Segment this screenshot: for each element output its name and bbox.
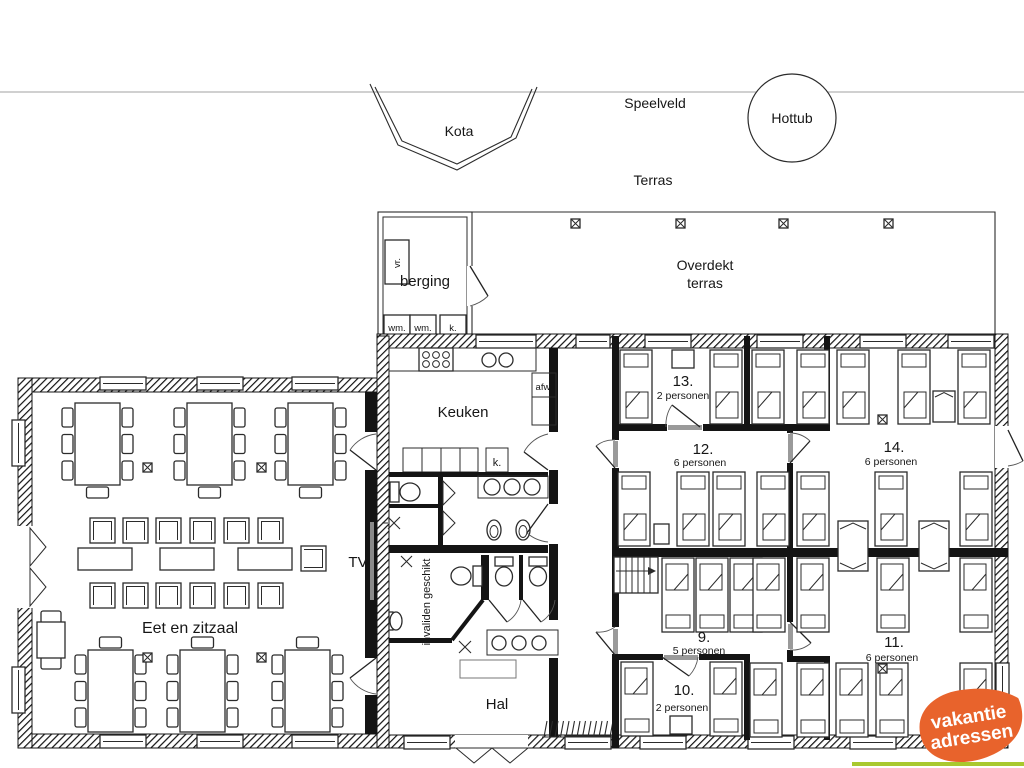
accessible-label: invaliden geschikt [421, 559, 433, 646]
room-9-capacity: 5 personen [673, 645, 726, 657]
berging-k-label: k. [449, 323, 456, 334]
overdekt-terras: Overdekt terras [472, 212, 995, 334]
armchair [123, 518, 148, 543]
column-icon [884, 219, 893, 228]
armchair [90, 518, 115, 543]
keuken: afw. Keuken k. [389, 348, 556, 472]
staircase [614, 557, 658, 593]
terras-label: Terras [634, 172, 673, 188]
bed-icon [618, 472, 650, 546]
hal-label: Hal [486, 696, 509, 713]
bed-icon [797, 558, 829, 632]
door-leaf [30, 528, 46, 566]
room-12-capacity: 6 personen [674, 457, 727, 469]
hal: invaliden geschikt Hal [389, 555, 614, 763]
nightstand [672, 350, 694, 368]
bed-icon [877, 558, 909, 632]
bed-icon [960, 472, 992, 546]
window-icon [197, 735, 243, 748]
vr-label: vr. [392, 258, 403, 268]
tv-label: TV [348, 554, 367, 571]
column-icon [779, 219, 788, 228]
stove-icon [419, 348, 453, 371]
nightstand [654, 524, 669, 544]
overdekt-terras-label-2: terras [687, 275, 723, 291]
bed-icon [621, 662, 653, 736]
wm-label-1: wm. [387, 323, 405, 334]
window-icon [100, 735, 146, 748]
washbasin-icon [504, 479, 520, 495]
window-icon [12, 420, 25, 466]
window-icon [748, 736, 794, 749]
side-table [37, 611, 65, 669]
armchair [90, 583, 115, 608]
armchair [258, 583, 283, 608]
window-icon [292, 735, 338, 748]
bed-icon [753, 558, 785, 632]
window-icon [565, 736, 611, 749]
floorplan-canvas: Kota Speelveld Hottub Terras Overdekt te… [0, 0, 1024, 768]
door-leaf [443, 481, 455, 505]
bed-icon [750, 663, 782, 737]
shower-icon [401, 556, 412, 567]
room-9-number: 9. [698, 629, 711, 646]
bed-icon [836, 663, 868, 737]
bed-icon [752, 350, 784, 424]
column-icon [571, 219, 580, 228]
window-icon [476, 335, 536, 348]
kitchen-label: Keuken [438, 404, 489, 421]
afw-label: afw. [536, 382, 553, 393]
room-11-number: 11. [884, 634, 904, 651]
column-icon [676, 219, 685, 228]
bed-icon [710, 662, 742, 736]
washbasin-icon [492, 636, 506, 650]
bed-icon [662, 558, 694, 632]
armchair [190, 518, 215, 543]
dining-table [75, 637, 146, 732]
bed-icon [620, 350, 652, 424]
wardrobe-icon [919, 521, 949, 571]
berging-label: berging [400, 273, 450, 290]
column-icon [878, 415, 887, 424]
window-icon [100, 377, 146, 390]
bedroom-furniture [618, 350, 992, 737]
window-icon [645, 335, 691, 348]
bed-icon [713, 472, 745, 546]
room-13-capacity: 2 personen [657, 390, 710, 402]
kitchen-sink-icon [499, 353, 513, 367]
door-leaf [443, 511, 455, 535]
bed-icon [696, 558, 728, 632]
dining-table [62, 403, 133, 498]
dining-room-label: Eet en zitzaal [142, 620, 238, 637]
window-icon [576, 335, 610, 348]
washbasin-icon [532, 636, 546, 650]
column-icon [143, 653, 152, 662]
kota-label: Kota [445, 123, 474, 139]
entrance-opening [455, 735, 528, 748]
window-icon [850, 736, 896, 749]
doormat [460, 660, 516, 678]
urinal-icon [487, 520, 501, 540]
sanitair [382, 472, 548, 553]
coffee-table [78, 548, 132, 570]
urinal-icon [516, 520, 530, 540]
nightstand [670, 716, 692, 734]
bed-icon [875, 472, 907, 546]
tv-unit [370, 522, 374, 600]
window-icon [197, 377, 243, 390]
armchair [224, 583, 249, 608]
bed-icon [876, 663, 908, 737]
speelveld-label: Speelveld [624, 95, 686, 111]
window-icon [948, 335, 994, 348]
wm-label-2: wm. [413, 323, 431, 334]
logo-accent-line [852, 762, 1024, 766]
bed-icon [837, 350, 869, 424]
bed-icon [797, 472, 829, 546]
coffee-table [238, 548, 292, 570]
door-leaf [456, 748, 492, 763]
floorplan-page: Kota Speelveld Hottub Terras Overdekt te… [0, 0, 1024, 768]
room-13-number: 13. [673, 373, 694, 390]
door-leaf [492, 748, 528, 763]
column-icon [257, 653, 266, 662]
armchair [156, 518, 181, 543]
toilet-icon [390, 482, 420, 502]
coffee-table [160, 548, 214, 570]
column-icon [257, 463, 266, 472]
armchair [123, 583, 148, 608]
toilet-icon [529, 557, 547, 586]
kitchen-k-label: k. [493, 457, 502, 469]
washbasin-icon [484, 479, 500, 495]
kitchen-sink-icon [482, 353, 496, 367]
armchair [301, 546, 326, 571]
room-12-number: 12. [693, 441, 714, 458]
window-icon [292, 377, 338, 390]
column-icon [878, 664, 887, 673]
room-10-number: 10. [674, 682, 695, 699]
armchair [190, 583, 215, 608]
dining-table [167, 637, 238, 732]
vakantieadressen-logo[interactable]: vakantie adressen [914, 681, 1024, 768]
armchair [224, 518, 249, 543]
bed-icon [710, 350, 742, 424]
shower-icon [459, 641, 471, 653]
bed-icon [797, 663, 829, 737]
bed-icon [958, 350, 990, 424]
window-icon [12, 667, 25, 713]
column-icon [143, 463, 152, 472]
eet-en-zitzaal: TV Eet en zitzaal [16, 403, 376, 732]
bed-icon [960, 558, 992, 632]
window-icon [404, 736, 450, 749]
bed-icon [898, 350, 930, 424]
exterior-door-opening [995, 426, 1009, 468]
bed-icon [677, 472, 709, 546]
hottub-label: Hottub [771, 110, 812, 126]
washbasin-icon [512, 636, 526, 650]
wardrobe-icon [933, 391, 955, 422]
toilet-icon [451, 566, 482, 586]
room-14-number: 14. [884, 439, 905, 456]
berging-room: vr. berging wm. wm. k. [378, 212, 488, 338]
dining-table [174, 403, 245, 498]
toilet-icon [495, 557, 513, 586]
window-icon [640, 736, 686, 749]
outdoor-area: Kota Speelveld Hottub Terras [0, 74, 1024, 188]
armchair [258, 518, 283, 543]
bed-icon [797, 350, 829, 424]
room-11-capacity: 6 personen [866, 652, 919, 664]
room-14-capacity: 6 personen [865, 456, 918, 468]
washbasin-icon [524, 479, 540, 495]
dining-table [275, 403, 346, 498]
window-icon [757, 335, 803, 348]
door-leaf [30, 568, 46, 606]
overdekt-terras-label-1: Overdekt [677, 257, 734, 273]
window-icon [860, 335, 906, 348]
bed-icon [757, 472, 789, 546]
accessible-sink-icon [389, 612, 402, 630]
room-10-capacity: 2 personen [656, 702, 709, 714]
wardrobe-icon [838, 521, 868, 571]
dining-table [272, 637, 343, 732]
armchair [156, 583, 181, 608]
